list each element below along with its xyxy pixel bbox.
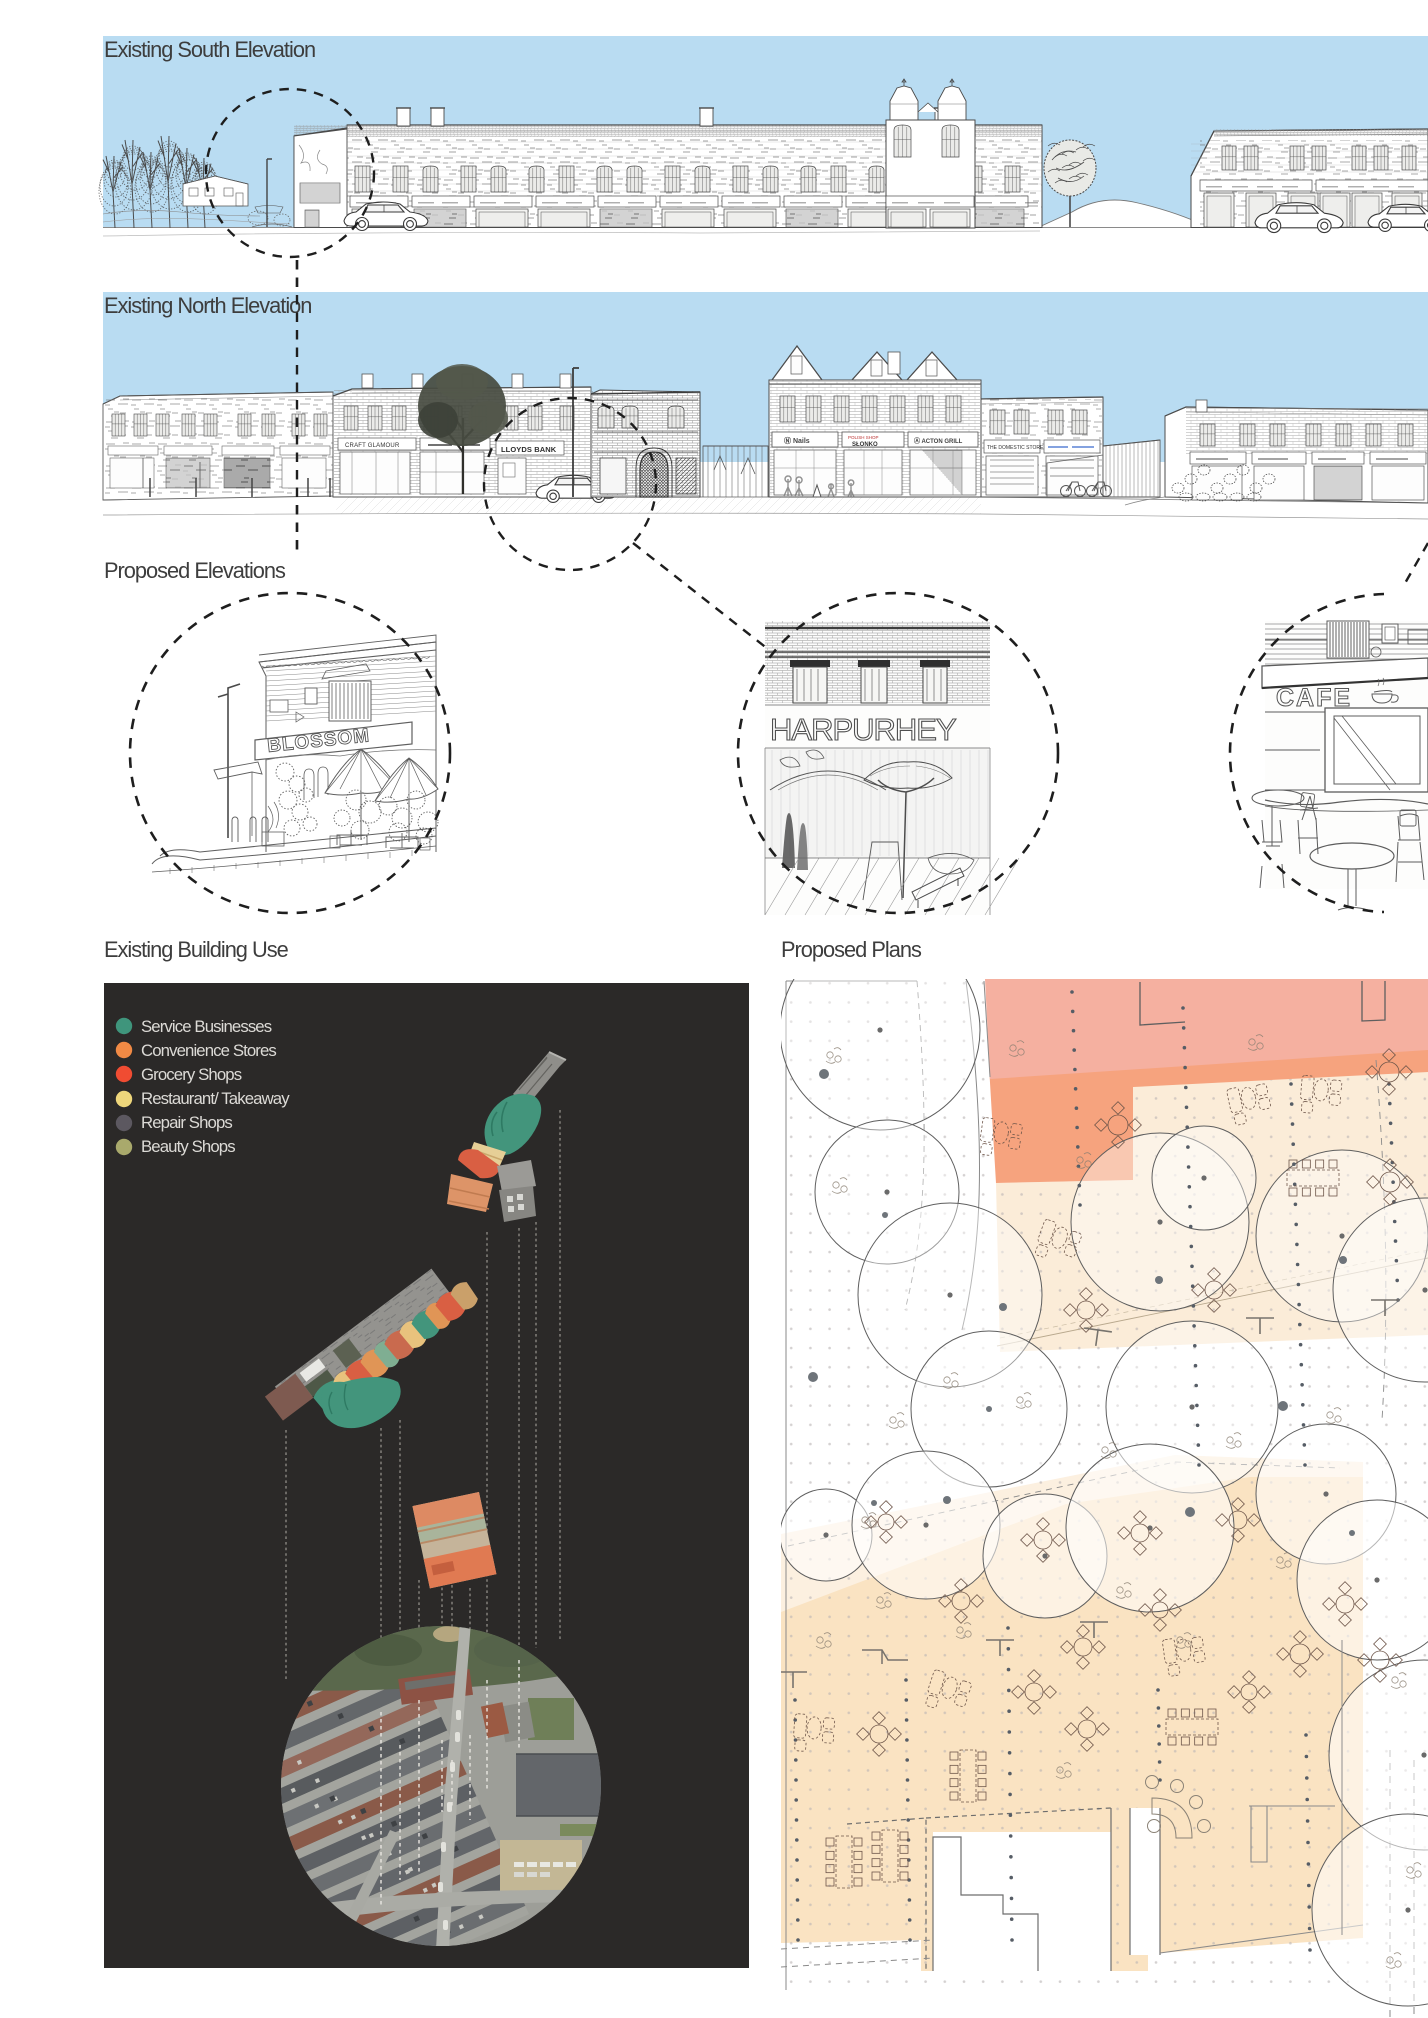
svg-text:Ⓐ ACTON GRILL: Ⓐ ACTON GRILL	[914, 437, 963, 445]
svg-text:SŁONKO: SŁONKO	[852, 442, 878, 448]
svg-text:Proposed Plans: Proposed Plans	[781, 937, 922, 962]
svg-text:Proposed Elevations: Proposed Elevations	[104, 558, 286, 583]
svg-text:Service Businesses: Service Businesses	[141, 1017, 272, 1036]
svg-text:LLOYDS BANK: LLOYDS BANK	[501, 445, 557, 454]
svg-text:Existing South Elevation: Existing South Elevation	[104, 37, 315, 62]
svg-text:POLISH SHOP: POLISH SHOP	[848, 435, 879, 440]
svg-text:Convenience Stores: Convenience Stores	[141, 1041, 276, 1060]
svg-text:Existing North Elevation: Existing North Elevation	[104, 293, 311, 318]
svg-text:THE DOMESTIC STORE: THE DOMESTIC STORE	[987, 445, 1044, 451]
svg-text:Beauty Shops: Beauty Shops	[141, 1137, 235, 1156]
svg-text:Repair Shops: Repair Shops	[141, 1113, 232, 1132]
svg-text:Ⓝ Nails: Ⓝ Nails	[784, 436, 810, 445]
svg-text:Restaurant/ Takeaway: Restaurant/ Takeaway	[141, 1089, 290, 1108]
svg-text:Grocery Shops: Grocery Shops	[141, 1065, 242, 1084]
svg-text:HARPURHEY: HARPURHEY	[770, 712, 956, 747]
svg-text:CRAFT GLAMOUR: CRAFT GLAMOUR	[345, 443, 400, 449]
svg-text:Existing Building Use: Existing Building Use	[104, 937, 289, 962]
